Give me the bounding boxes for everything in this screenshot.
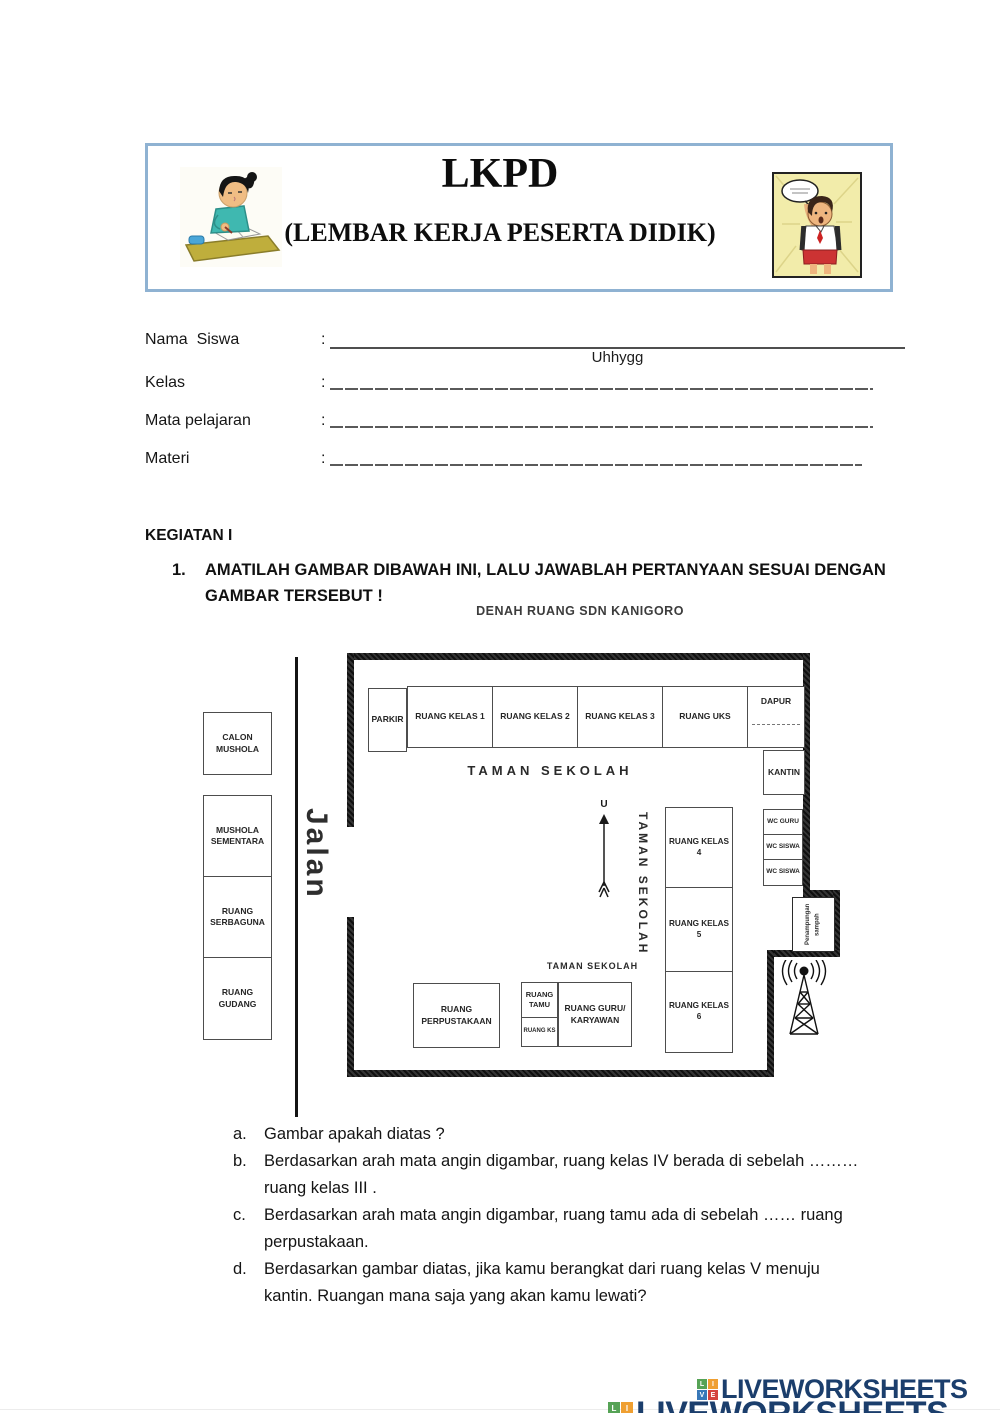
question-text: kantin. Ruangan mana saja yang akan kamu… bbox=[264, 1283, 820, 1310]
room-ruang-gudang: RUANG GUDANG bbox=[203, 957, 272, 1040]
room-kelas-1: RUANG KELAS 1 bbox=[407, 686, 493, 748]
field-label-kelas: Kelas bbox=[145, 374, 185, 392]
garden-label-main: TAMAN SEKOLAH bbox=[380, 763, 720, 778]
room-wc-guru: WC GURU bbox=[763, 809, 803, 835]
instruction-line1: AMATILAH GAMBAR DIBAWAH INI, LALU JAWABL… bbox=[205, 561, 886, 580]
room-calon-mushola: CALON MUSHOLA bbox=[203, 712, 272, 775]
road-label: Jalan bbox=[299, 808, 333, 968]
question-letter: b. bbox=[233, 1148, 264, 1202]
room-kelas-5: RUANG KELAS 5 bbox=[665, 887, 733, 972]
radio-tower-icon bbox=[779, 960, 829, 1040]
boy-raising-hand-illustration bbox=[772, 172, 862, 278]
road-line bbox=[295, 657, 298, 1117]
room-penampungan-sampah: Penampungan sampah bbox=[792, 897, 835, 952]
question-letter: a. bbox=[233, 1121, 264, 1148]
question-text: perpustakaan. bbox=[264, 1229, 843, 1256]
logo-square-i: I bbox=[708, 1379, 718, 1389]
instruction-line2: GAMBAR TERSEBUT ! bbox=[205, 587, 383, 606]
room-dapur: DAPUR bbox=[747, 686, 805, 748]
colon: : bbox=[321, 331, 325, 349]
liveworksheets-wordmark: LIVEWORKSHEETS bbox=[636, 1395, 948, 1413]
garden-label-vertical: TAMAN SEKOLAH bbox=[636, 812, 650, 972]
room-tamu: RUANG TAMU bbox=[521, 982, 558, 1018]
question-letter: d. bbox=[233, 1256, 264, 1310]
field-label-materi: Materi bbox=[145, 450, 189, 468]
colon: : bbox=[321, 374, 325, 392]
compass-label: U bbox=[596, 799, 612, 810]
room-kantin: KANTIN bbox=[763, 750, 805, 795]
room-mushola-sementara: MUSHOLA SEMENTARA bbox=[203, 795, 272, 877]
room-kelas-3: RUANG KELAS 3 bbox=[577, 686, 663, 748]
logo-square-l: L bbox=[697, 1379, 707, 1389]
room-uks: RUANG UKS bbox=[662, 686, 748, 748]
wall-right-lower bbox=[767, 950, 774, 1077]
question-text: Berdasarkan gambar diatas, jika kamu ber… bbox=[264, 1256, 820, 1283]
question-text: Berdasarkan arah mata angin digambar, ru… bbox=[264, 1202, 843, 1229]
liveworksheets-logo-partial: L I V E LIVEWORKSHEETS bbox=[608, 1395, 948, 1413]
room-wc-siswa-1: WC SISWA bbox=[763, 834, 803, 860]
room-ruang-serbaguna: RUANG SERBAGUNA bbox=[203, 876, 272, 958]
question-letter: c. bbox=[233, 1202, 264, 1256]
room-kelas-2: RUANG KELAS 2 bbox=[492, 686, 578, 748]
materi-input-line[interactable] bbox=[330, 464, 862, 466]
north-arrow-icon bbox=[597, 814, 611, 904]
question-text: Berdasarkan arah mata angin digambar, ru… bbox=[264, 1148, 858, 1175]
wall-left-upper bbox=[347, 653, 354, 827]
room-ks: RUANG KS bbox=[521, 1017, 558, 1047]
worksheet-page: LKPD (LEMBAR KERJA PESERTA DIDIK) bbox=[0, 0, 1000, 1413]
room-parkir: PARKIR bbox=[368, 688, 407, 752]
wall-top bbox=[347, 653, 810, 660]
garden-label-small: TAMAN SEKOLAH bbox=[540, 961, 645, 971]
wall-bottom bbox=[347, 1070, 774, 1077]
room-kelas-4: RUANG KELAS 4 bbox=[665, 807, 733, 888]
question-d: d. Berdasarkan gambar diatas, jika kamu … bbox=[233, 1256, 820, 1310]
logo-square-i: I bbox=[621, 1402, 633, 1413]
room-kelas-6: RUANG KELAS 6 bbox=[665, 971, 733, 1053]
colon: : bbox=[321, 450, 325, 468]
question-text: ruang kelas III . bbox=[264, 1175, 858, 1202]
liveworksheets-squares-icon: L I V E bbox=[608, 1402, 633, 1413]
room-guru-karyawan: RUANG GURU/ KARYAWAN bbox=[558, 982, 632, 1047]
field-label-mata-pelajaran: Mata pelajaran bbox=[145, 412, 251, 430]
question-b: b. Berdasarkan arah mata angin digambar,… bbox=[233, 1148, 858, 1202]
girl-writing-illustration bbox=[180, 167, 282, 267]
question-a: a. Gambar apakah diatas ? bbox=[233, 1121, 445, 1148]
room-perpustakaan: RUANG PERPUSTAKAAN bbox=[413, 983, 500, 1048]
colon: : bbox=[321, 412, 325, 430]
wall-left-lower bbox=[347, 917, 354, 1077]
floorplan-title: DENAH RUANG SDN KANIGORO bbox=[430, 604, 730, 618]
question-text: Gambar apakah diatas ? bbox=[264, 1121, 445, 1148]
nama-siswa-value[interactable]: Uhhygg bbox=[330, 349, 905, 366]
field-label-nama-siswa: Nama Siswa bbox=[145, 331, 239, 349]
penampungan-sampah-label: Penampungan sampah bbox=[804, 898, 823, 951]
question-c: c. Berdasarkan arah mata angin digambar,… bbox=[233, 1202, 843, 1256]
logo-square-l: L bbox=[608, 1402, 620, 1413]
activity-heading: KEGIATAN I bbox=[145, 527, 232, 545]
dapur-divider bbox=[752, 724, 800, 725]
room-wc-siswa-2: WC SISWA bbox=[763, 859, 803, 886]
mata-pelajaran-input-line[interactable] bbox=[330, 426, 873, 428]
instruction-number: 1. bbox=[172, 561, 186, 580]
kelas-input-line[interactable] bbox=[330, 388, 873, 390]
